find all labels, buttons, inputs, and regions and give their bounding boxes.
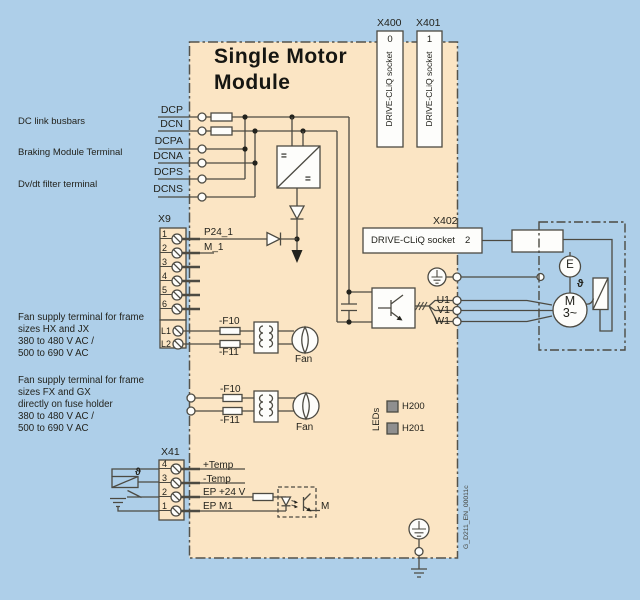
connector-x402-label: X402 (433, 216, 458, 227)
x41-pin-4: 4 (162, 459, 167, 470)
theta-symbol-x41: ϑ (135, 467, 141, 478)
connector-x401-label: X401 (416, 18, 441, 29)
label-dc-link-busbars: DC link busbars (18, 116, 85, 127)
x9-pin-1: 1 (162, 229, 167, 240)
terminal-dcpa: DCPA (143, 136, 183, 147)
x9-pin-2: 2 (162, 243, 167, 254)
label-dvdt-filter: Dv/dt filter terminal (18, 179, 97, 190)
terminal-dcn: DCN (143, 119, 183, 130)
x9-pin-l2: L2 (161, 339, 171, 350)
terminal-dcp: DCP (143, 105, 183, 116)
fan-label-fx: Fan (296, 422, 313, 433)
svg-text:=: = (305, 174, 311, 185)
signal-plus-temp: +Temp (203, 460, 233, 471)
label-braking-module: Braking Module Terminal (18, 147, 122, 158)
motor-phases-label: 3~ (558, 308, 582, 319)
schematic-wiring: = = (0, 0, 640, 600)
fan-label-hx: Fan (295, 354, 312, 365)
x41-pin-3: 3 (162, 473, 167, 484)
signal-p24-1: P24_1 (204, 227, 233, 238)
led-h201-label: H201 (402, 423, 425, 434)
encoder-label: E (559, 260, 581, 271)
connector-x41-label: X41 (161, 447, 180, 458)
x9-pin-6: 6 (162, 299, 167, 310)
x9-pin-4: 4 (162, 271, 167, 282)
x402-port-number: 2 (465, 235, 470, 246)
signal-ep-m1: EP M1 (203, 501, 233, 512)
label-fan-supply-hx: Fan supply terminal for framesizes HX an… (18, 312, 144, 360)
signal-minus-temp: -Temp (203, 474, 231, 485)
terminal-dcns: DCNS (143, 184, 183, 195)
connector-x9-label: X9 (158, 214, 171, 225)
x9-pin-3: 3 (162, 257, 167, 268)
x9-pin-l1: L1 (161, 326, 171, 337)
fuse-f11-hx: -F11 (219, 347, 239, 358)
module-title-line1: Single Motor (214, 45, 347, 69)
terminal-dcps: DCPS (143, 167, 183, 178)
module-title-line2: Module (214, 71, 291, 95)
x401-socket-text: DRIVE-CLiQ socket (424, 35, 435, 143)
label-fan-supply-fx: Fan supply terminal for framesizes FX an… (18, 375, 144, 435)
svg-text:=: = (281, 151, 287, 162)
x9-pin-5: 5 (162, 285, 167, 296)
x400-socket-text: DRIVE-CLiQ socket (384, 35, 395, 143)
x41-pin-2: 2 (162, 487, 167, 498)
x41-pin-1: 1 (162, 501, 167, 512)
doc-id: G_D211_EN_00011c (461, 475, 472, 549)
opto-output-m: M (321, 501, 329, 512)
signal-ep-24v: EP +24 V (203, 487, 245, 498)
single-motor-module-diagram: = = (0, 0, 640, 600)
connector-x400-label: X400 (377, 18, 402, 29)
led-h200-label: H200 (402, 401, 425, 412)
theta-symbol-motor: ϑ (577, 279, 583, 290)
fuse-f10-hx: -F10 (219, 316, 240, 327)
terminal-dcna: DCNA (143, 151, 183, 162)
x402-socket-text: DRIVE-CLiQ socket (371, 235, 455, 246)
fuse-f10-fx: -F10 (220, 384, 241, 395)
signal-m-1: M_1 (204, 242, 223, 253)
fuse-f11-fx: -F11 (220, 415, 240, 426)
leds-label: LEDs (371, 401, 382, 431)
output-w1: W1 (428, 316, 450, 327)
